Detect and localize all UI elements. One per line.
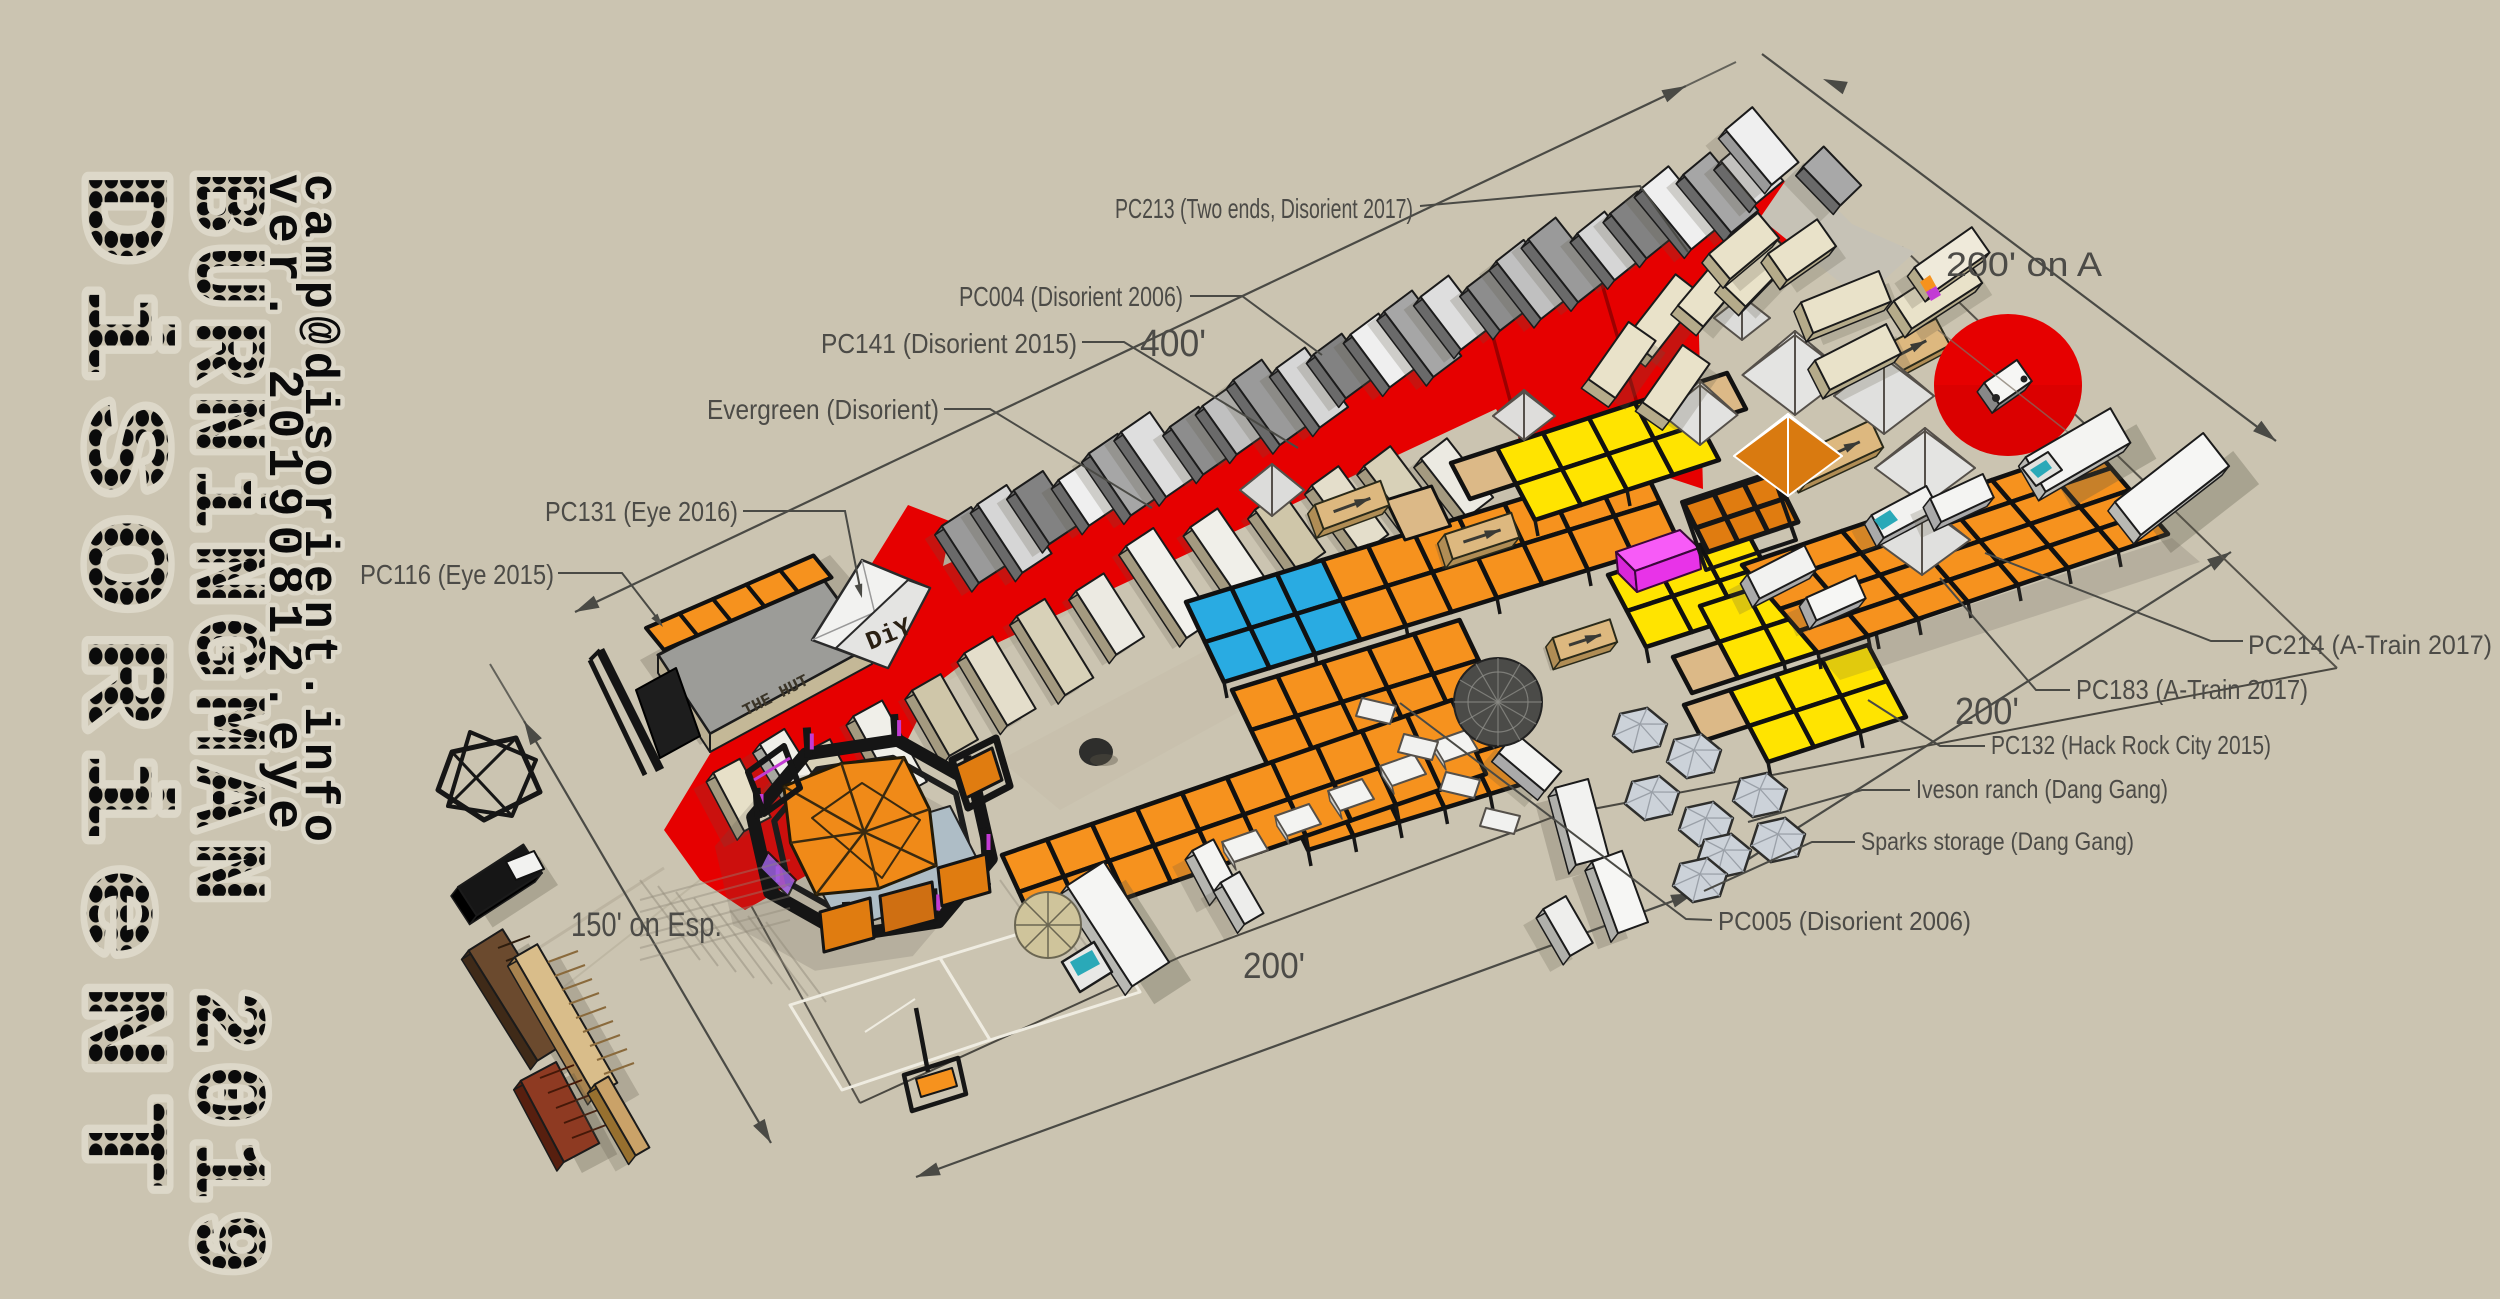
- svg-text:Sparks storage (Dang Gang): Sparks storage (Dang Gang): [1861, 828, 2134, 856]
- svg-text:Iveson ranch (Dang Gang): Iveson ranch (Dang Gang): [1916, 774, 2168, 804]
- svg-text:150' on Esp.: 150' on Esp.: [571, 906, 722, 944]
- svg-text:Evergreen (Disorient): Evergreen (Disorient): [707, 394, 939, 425]
- svg-text:PC131 (Eye 2016): PC131 (Eye 2016): [545, 496, 738, 527]
- svg-text:PC213 (Two ends, Disorient 201: PC213 (Two ends, Disorient 2017): [1115, 193, 1413, 224]
- svg-text:200' on A: 200' on A: [1946, 246, 2102, 284]
- svg-text:200': 200': [1955, 691, 2019, 733]
- svg-text:PC132 (Hack Rock City 2015): PC132 (Hack Rock City 2015): [1991, 730, 2271, 760]
- svg-text:PC183 (A-Train 2017): PC183 (A-Train 2017): [2076, 674, 2308, 705]
- svg-text:PC005 (Disorient 2006): PC005 (Disorient 2006): [1718, 906, 1971, 936]
- svg-text:PC004 (Disorient 2006): PC004 (Disorient 2006): [959, 281, 1183, 312]
- svg-text:200': 200': [1243, 945, 1305, 986]
- svg-text:PC214 (A-Train 2017): PC214 (A-Train 2017): [2248, 630, 2492, 660]
- svg-text:PC116 (Eye 2015): PC116 (Eye 2015): [360, 559, 554, 590]
- svg-text:PC141 (Disorient 2015): PC141 (Disorient 2015): [821, 328, 1077, 359]
